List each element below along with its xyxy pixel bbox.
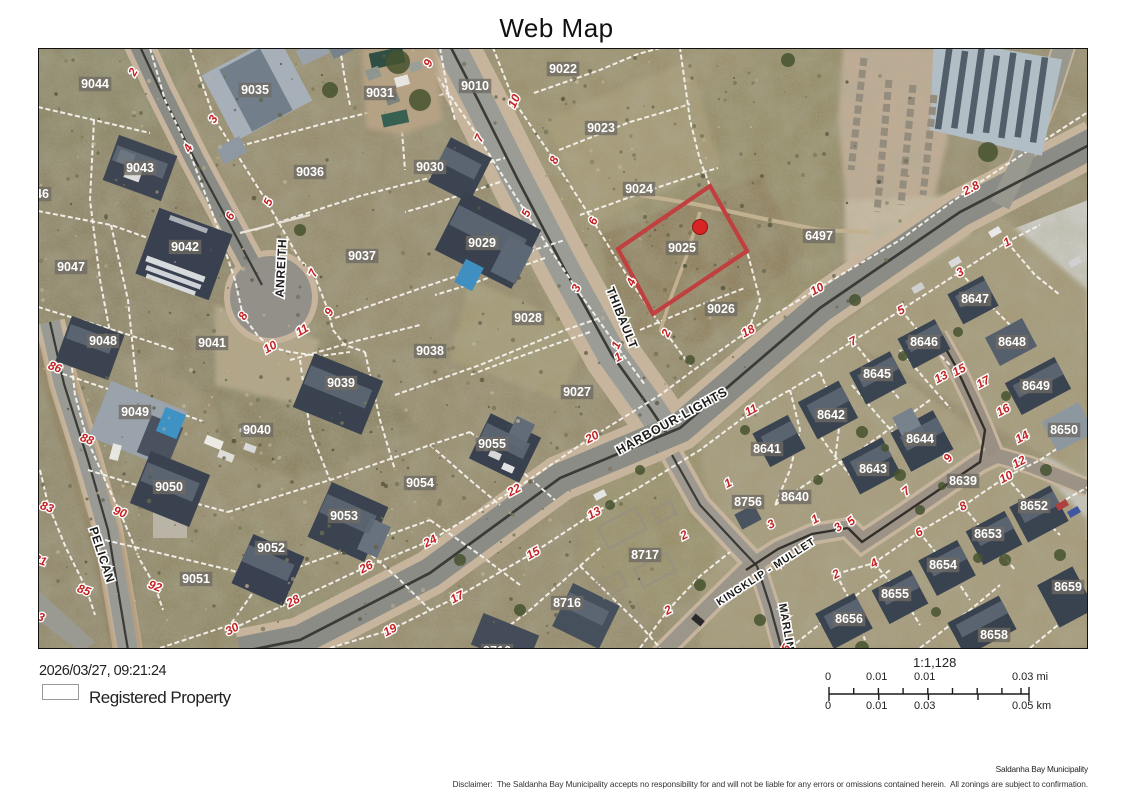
svg-text:8717: 8717 bbox=[631, 548, 659, 562]
svg-text:8716: 8716 bbox=[553, 596, 581, 610]
svg-text:9030: 9030 bbox=[416, 160, 444, 174]
svg-text:9055: 9055 bbox=[478, 437, 506, 451]
svg-text:9716: 9716 bbox=[483, 644, 511, 658]
svg-text:9038: 9038 bbox=[416, 344, 444, 358]
svg-text:9036: 9036 bbox=[296, 165, 324, 179]
svg-text:9010: 9010 bbox=[461, 79, 489, 93]
svg-text:9025: 9025 bbox=[668, 241, 696, 255]
svg-text:9050: 9050 bbox=[155, 480, 183, 494]
svg-text:8642: 8642 bbox=[817, 408, 845, 422]
svg-text:8639: 8639 bbox=[949, 474, 977, 488]
svg-text:8647: 8647 bbox=[961, 292, 989, 306]
svg-text:9022: 9022 bbox=[549, 62, 577, 76]
svg-text:9049: 9049 bbox=[121, 405, 149, 419]
svg-text:46: 46 bbox=[35, 187, 49, 201]
svg-text:9028: 9028 bbox=[514, 311, 542, 325]
svg-text:8659: 8659 bbox=[1054, 580, 1082, 594]
svg-text:8649: 8649 bbox=[1022, 379, 1050, 393]
svg-text:9027: 9027 bbox=[563, 385, 591, 399]
svg-text:8655: 8655 bbox=[881, 587, 909, 601]
svg-text:9035: 9035 bbox=[241, 83, 269, 97]
svg-text:9048: 9048 bbox=[89, 334, 117, 348]
svg-text:8640: 8640 bbox=[781, 490, 809, 504]
svg-text:9026: 9026 bbox=[707, 302, 735, 316]
svg-text:9051: 9051 bbox=[182, 572, 210, 586]
svg-text:8652: 8652 bbox=[1020, 499, 1048, 513]
svg-text:8756: 8756 bbox=[734, 495, 762, 509]
svg-text:8643: 8643 bbox=[859, 462, 887, 476]
svg-text:8658: 8658 bbox=[980, 628, 1008, 642]
svg-text:8654: 8654 bbox=[929, 558, 957, 572]
svg-text:9040: 9040 bbox=[243, 423, 271, 437]
svg-text:8645: 8645 bbox=[863, 367, 891, 381]
svg-text:9023: 9023 bbox=[587, 121, 615, 135]
svg-text:9042: 9042 bbox=[171, 240, 199, 254]
svg-text:9043: 9043 bbox=[126, 161, 154, 175]
svg-text:9041: 9041 bbox=[198, 336, 226, 350]
svg-text:9029: 9029 bbox=[468, 236, 496, 250]
svg-text:9054: 9054 bbox=[406, 476, 434, 490]
svg-text:9039: 9039 bbox=[327, 376, 355, 390]
svg-text:9037: 9037 bbox=[348, 249, 376, 263]
svg-text:8653: 8653 bbox=[974, 527, 1002, 541]
svg-text:8644: 8644 bbox=[906, 432, 934, 446]
svg-text:9044: 9044 bbox=[81, 77, 109, 91]
svg-text:6497: 6497 bbox=[805, 229, 833, 243]
svg-text:8648: 8648 bbox=[998, 335, 1026, 349]
svg-text:8656: 8656 bbox=[835, 612, 863, 626]
svg-text:9053: 9053 bbox=[330, 509, 358, 523]
svg-text:8650: 8650 bbox=[1050, 423, 1078, 437]
svg-text:9052: 9052 bbox=[257, 541, 285, 555]
svg-text:9031: 9031 bbox=[366, 86, 394, 100]
svg-text:8641: 8641 bbox=[753, 442, 781, 456]
svg-text:8646: 8646 bbox=[910, 335, 938, 349]
svg-text:9047: 9047 bbox=[57, 260, 85, 274]
svg-text:9024: 9024 bbox=[625, 182, 653, 196]
